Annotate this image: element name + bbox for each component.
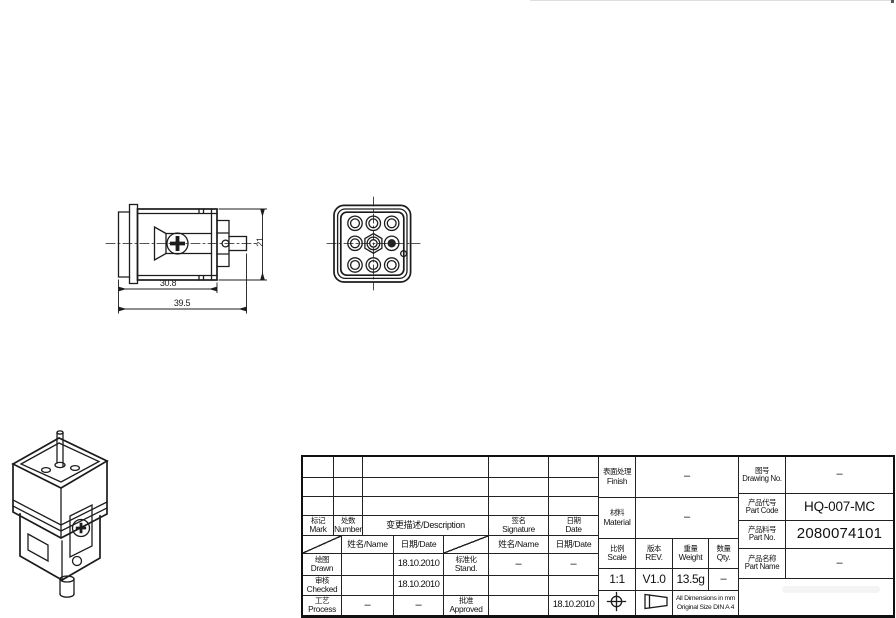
revision-empty-cell <box>362 457 488 477</box>
checked-date-cell: 18.10.2010 <box>393 575 443 595</box>
part-code-label-cell: 产品代号 Part Code <box>738 493 785 520</box>
process-label-en: Process <box>308 605 336 614</box>
dimensions-note-cell: All Dimensions in mm Original Size DIN A… <box>672 590 738 615</box>
description-label: 变更描述/Description <box>386 521 465 531</box>
name-header-label: 姓名/Name <box>347 540 387 549</box>
drawn-label-en: Drawn <box>311 564 333 573</box>
drawing-no-label-cell: 图号 Drawing No. <box>738 457 785 493</box>
drawing-no-value: – <box>836 469 842 481</box>
drawn-name-cell <box>341 553 393 575</box>
part-code-label-en: Part Code <box>746 507 778 515</box>
scale-header-cell: 比例 Scale <box>598 538 635 568</box>
checked-date-value: 18.10.2010 <box>398 580 440 590</box>
process-name-cell: – <box>341 595 393 615</box>
material-value: – <box>684 512 690 524</box>
drawn-date-cell: 18.10.2010 <box>393 553 443 575</box>
weight-header-cell: 重量 Weight <box>672 538 708 568</box>
scale-label-en: Scale <box>607 553 626 562</box>
checked-name-cell <box>341 575 393 595</box>
rev-value-cell: V1.0 <box>635 568 672 590</box>
material-label-en: Material <box>603 518 630 527</box>
revision-empty-cell <box>488 457 548 477</box>
checked-empty-cell <box>443 575 488 595</box>
part-code-value-cell: HQ-007-MC <box>785 493 893 520</box>
part-no-value: 2080074101 <box>797 526 882 542</box>
signoff-role-checked: 审核 Checked <box>303 575 341 595</box>
revision-col-date: 日期 Date <box>548 515 598 535</box>
signoff-diagonal-cell <box>303 535 341 553</box>
material-value-cell: – <box>635 497 738 538</box>
revision-empty-cell <box>488 496 548 515</box>
signoff-diagonal-cell <box>443 535 488 553</box>
date-header-label: 日期/Date <box>401 540 437 549</box>
process-date-value: – <box>415 600 421 612</box>
revision-empty-cell <box>362 477 488 496</box>
checked-empty-cell <box>548 575 598 595</box>
dimension-label-height: 21 <box>255 230 265 254</box>
part-code-value: HQ-007-MC <box>804 500 875 515</box>
rev-label-en: REV. <box>645 553 662 562</box>
dimension-label-total-width: 39.5 <box>166 298 198 308</box>
rev-header-cell: 版本 REV. <box>635 538 672 568</box>
qty-label-en: Qty. <box>717 553 730 562</box>
revision-col-mark: 标记 Mark <box>303 515 333 535</box>
revision-empty-cell <box>548 477 598 496</box>
revision-col-description: 变更描述/Description <box>362 515 488 535</box>
qty-header-cell: 数量 Qty. <box>708 538 738 568</box>
finish-label-cell: 表面处理 Finish <box>598 457 635 497</box>
signoff-role-drawn: 绘图 Drawn <box>303 553 341 575</box>
scale-value: 1:1 <box>609 573 624 586</box>
revision-empty-cell <box>488 477 548 496</box>
revision-col-number: 处数 Number <box>333 515 362 535</box>
engineering-drawing-sheet: 30.8 39.5 21 标记 Mark 处数 Number 变更描述/Desc… <box>0 0 896 618</box>
part-name-label-en: Part Name <box>745 563 780 571</box>
qty-value-cell: – <box>708 568 738 590</box>
revision-empty-cell <box>333 457 362 477</box>
side-view-drawing <box>106 205 267 314</box>
part-name-label-cell: 产品名称 Part Name <box>738 548 785 578</box>
weight-label-en: Weight <box>679 553 703 562</box>
revision-empty-cell <box>303 496 333 515</box>
front-view-drawing <box>327 197 420 290</box>
part-no-value-cell: 2080074101 <box>785 520 893 548</box>
weight-value: 13.5g <box>676 573 704 586</box>
date-header-label-2: 日期/Date <box>556 540 592 549</box>
mark-label-en: Mark <box>309 525 326 534</box>
signoff-role-approved: 批准 Approved <box>443 595 488 615</box>
revision-empty-cell <box>548 457 598 477</box>
material-label-cell: 材料 Material <box>598 497 635 538</box>
title-block-empty-cell <box>738 578 893 615</box>
revision-empty-cell <box>333 477 362 496</box>
approved-label-en: Approved <box>449 605 482 614</box>
approved-date-value: 18.10.2010 <box>553 600 595 610</box>
part-no-label-cell: 产品料号 Part No. <box>738 520 785 548</box>
rev-value: V1.0 <box>642 573 665 586</box>
faint-watermark <box>782 586 880 593</box>
process-date-cell: – <box>393 595 443 615</box>
drawing-no-value-cell: – <box>785 457 893 493</box>
finish-value-cell: – <box>635 457 738 497</box>
revision-empty-cell <box>362 496 488 515</box>
number-label-en: Number <box>334 525 362 534</box>
part-name-value: – <box>836 558 842 570</box>
revision-empty-cell <box>333 496 362 515</box>
part-no-label-en: Part No. <box>749 534 775 542</box>
stand-name-value: – <box>515 559 521 571</box>
scale-value-cell: 1:1 <box>598 568 635 590</box>
note-line-1: All Dimensions in mm <box>676 594 735 603</box>
date-label-en: Date <box>565 525 581 534</box>
note-line-2: Original Size DIN A 4 <box>677 603 734 612</box>
approved-name-cell <box>488 595 548 615</box>
process-name-value: – <box>364 600 370 612</box>
revision-empty-cell <box>303 457 333 477</box>
signoff-date-header: 日期/Date <box>393 535 443 553</box>
stand-date-cell: – <box>548 553 598 575</box>
stand-name-cell: – <box>488 553 548 575</box>
drawing-no-label-en: Drawing No. <box>742 475 782 483</box>
isometric-view-drawing <box>13 431 107 597</box>
signoff-name-header: 姓名/Name <box>341 535 393 553</box>
signoff-name-header-2: 姓名/Name <box>488 535 548 553</box>
signoff-date-header-2: 日期/Date <box>548 535 598 553</box>
name-header-label-2: 姓名/Name <box>498 540 538 549</box>
revision-empty-cell <box>303 477 333 496</box>
weight-value-cell: 13.5g <box>672 568 708 590</box>
part-name-value-cell: – <box>785 548 893 578</box>
revision-col-signature: 签名 Signature <box>488 515 548 535</box>
dimension-label-inner-width: 30.8 <box>152 278 184 288</box>
revision-empty-cell <box>548 496 598 515</box>
finish-label-en: Finish <box>607 477 627 486</box>
drawn-date-value: 18.10.2010 <box>398 559 440 569</box>
stand-date-value: – <box>570 559 576 571</box>
signature-label-en: Signature <box>502 525 535 534</box>
projection-symbol-cell-2 <box>635 590 672 615</box>
projection-symbol-cell-1 <box>598 590 635 615</box>
stand-label-en: Stand. <box>455 564 477 573</box>
approved-date-cell: 18.10.2010 <box>548 595 598 615</box>
signoff-role-standardized: 标准化 Stand. <box>443 553 488 575</box>
qty-value: – <box>720 574 726 586</box>
checked-empty-cell <box>488 575 548 595</box>
checked-label-en: Checked <box>307 585 338 594</box>
finish-value: – <box>684 471 690 483</box>
signoff-role-process: 工艺 Process <box>303 595 341 615</box>
